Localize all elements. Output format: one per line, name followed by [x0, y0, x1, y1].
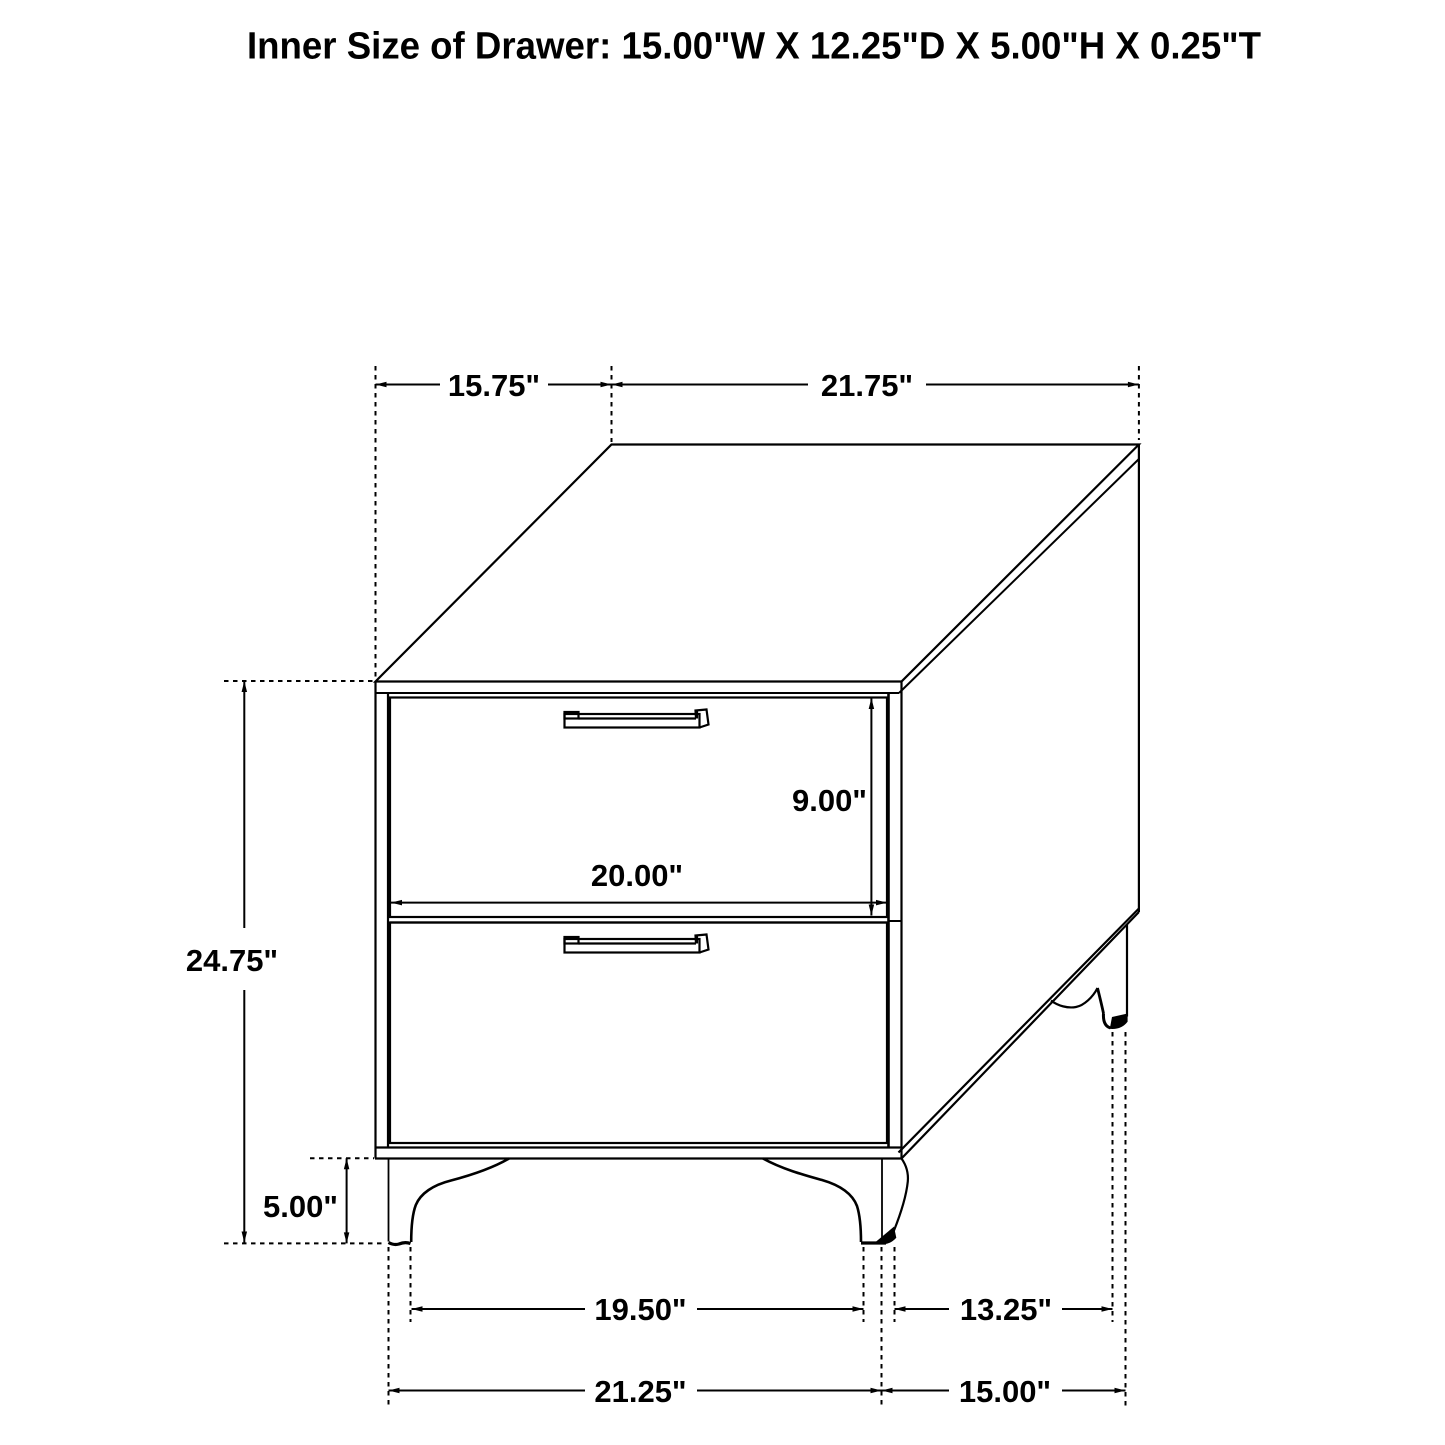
svg-text:21.25": 21.25" [594, 1374, 686, 1409]
svg-text:15.00": 15.00" [959, 1374, 1051, 1409]
svg-text:24.75": 24.75" [186, 943, 278, 978]
svg-text:Inner Size of Drawer: 15.00"W: Inner Size of Drawer: 15.00"W X 12.25"D … [247, 26, 1261, 68]
svg-text:21.75": 21.75" [821, 368, 913, 403]
svg-text:20.00": 20.00" [591, 858, 683, 893]
svg-text:13.25": 13.25" [960, 1292, 1052, 1327]
svg-text:19.50": 19.50" [594, 1292, 686, 1327]
svg-text:9.00": 9.00" [792, 783, 867, 818]
svg-text:5.00": 5.00" [263, 1189, 338, 1224]
svg-text:15.75": 15.75" [448, 368, 540, 403]
